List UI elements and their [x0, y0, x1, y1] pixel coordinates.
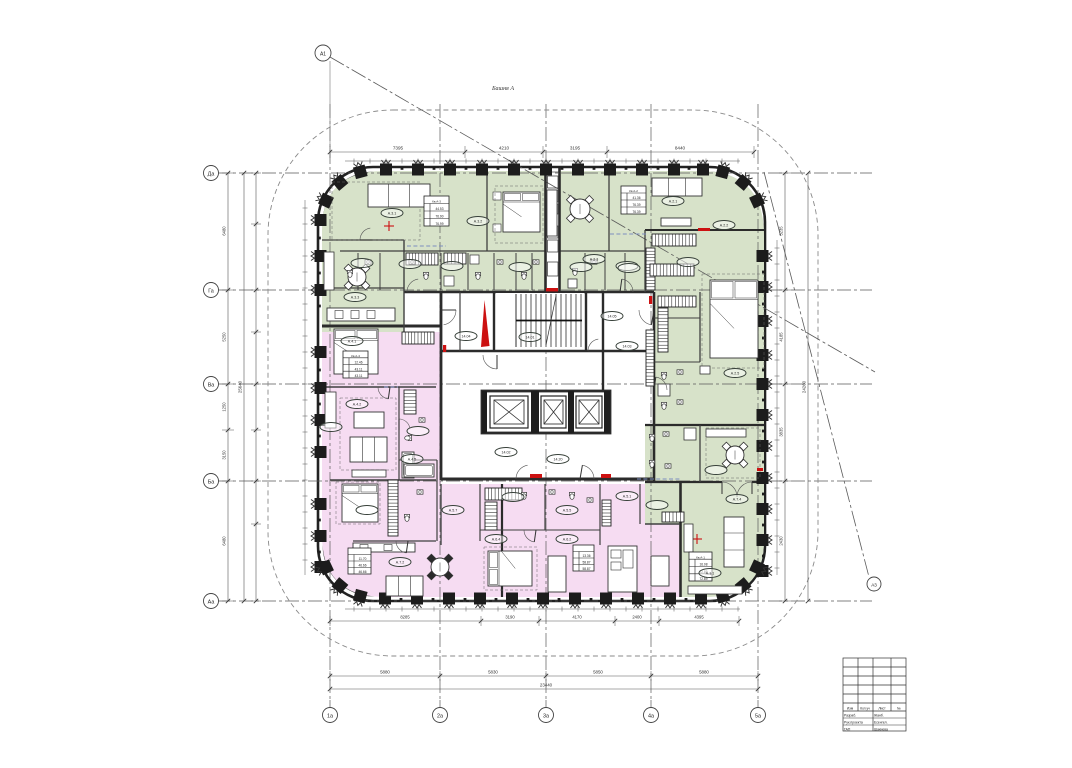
svg-text:3195: 3195 [570, 146, 581, 151]
svg-text:ГАП: ГАП [844, 728, 851, 732]
svg-text:1250: 1250 [222, 402, 227, 412]
svg-text:23440: 23440 [540, 683, 553, 688]
svg-text:Аа: Аа [208, 599, 215, 605]
svg-text:7395: 7395 [393, 146, 404, 151]
svg-text:А.3.3: А.3.3 [351, 295, 359, 299]
svg-text:13.36: 13.36 [583, 554, 591, 558]
svg-text:25640: 25640 [238, 380, 243, 393]
svg-text:14.20: 14.20 [554, 457, 563, 461]
svg-text:2400: 2400 [632, 615, 642, 620]
svg-text:44.53: 44.53 [436, 207, 444, 211]
svg-text:А.7.4: А.7.4 [733, 497, 741, 501]
svg-text:3235: 3235 [779, 226, 784, 236]
svg-text:Кв.А-3: Кв.А-3 [432, 200, 441, 204]
svg-text:5830: 5830 [488, 670, 498, 675]
svg-text:14.02: 14.02 [502, 450, 511, 454]
svg-text:46.66: 46.66 [359, 564, 367, 568]
svg-text:А.2.1: А.2.1 [669, 199, 677, 203]
svg-text:2430: 2430 [779, 536, 784, 546]
svg-text:А.2.3: А.2.3 [590, 257, 598, 261]
svg-text:Есенгел.: Есенгел. [874, 721, 888, 725]
svg-text:Кв.А-1: Кв.А-1 [696, 555, 705, 559]
svg-text:А.6.4: А.6.4 [492, 537, 500, 541]
svg-text:А.5.1: А.5.1 [623, 494, 631, 498]
svg-text:4185: 4185 [779, 332, 784, 342]
svg-text:43.11: 43.11 [355, 367, 363, 371]
svg-text:Кол.уч: Кол.уч [860, 707, 870, 711]
svg-text:41.36: 41.36 [633, 196, 641, 200]
svg-text:6480: 6480 [222, 226, 227, 236]
svg-text:43.11: 43.11 [355, 374, 363, 378]
svg-text:Лист: Лист [878, 707, 886, 711]
svg-text:4а: 4а [648, 713, 654, 719]
svg-text:8285: 8285 [400, 615, 410, 620]
svg-text:А.2.2: А.2.2 [720, 223, 728, 227]
svg-text:Кв.А-4: Кв.А-4 [351, 354, 360, 358]
svg-text:Жанб.: Жанб. [874, 714, 884, 718]
svg-text:А1: А1 [320, 51, 326, 57]
svg-text:3150: 3150 [222, 450, 227, 460]
svg-text:24260: 24260 [802, 380, 807, 393]
svg-text:4210: 4210 [499, 146, 510, 151]
svg-text:6480: 6480 [222, 536, 227, 546]
svg-text:Разраб.: Разраб. [844, 714, 856, 718]
svg-text:А.5.5: А.5.5 [563, 508, 571, 512]
svg-text:А.1.1: А.1.1 [706, 571, 714, 575]
svg-text:76.39: 76.39 [633, 210, 641, 214]
svg-text:А.5.7: А.5.7 [449, 508, 457, 512]
svg-text:Шакиева: Шакиева [874, 728, 888, 732]
svg-text:4170: 4170 [572, 615, 582, 620]
svg-text:58.87: 58.87 [583, 561, 591, 565]
svg-text:3835: 3835 [779, 427, 784, 437]
svg-text:А.7.2: А.7.2 [396, 560, 404, 564]
svg-text:Га: Га [208, 288, 214, 294]
svg-text:Изм: Изм [847, 707, 854, 711]
svg-text:А.4.2: А.4.2 [353, 402, 361, 406]
svg-text:А.2.5: А.2.5 [731, 371, 739, 375]
svg-text:14.04: 14.04 [462, 334, 471, 338]
svg-text:А3: А3 [871, 582, 877, 587]
svg-text:14.05: 14.05 [608, 314, 617, 318]
svg-text:№: № [897, 707, 901, 711]
svg-text:А.4.1: А.4.1 [348, 339, 356, 343]
svg-text:5850: 5850 [593, 670, 603, 675]
svg-text:14.01: 14.01 [526, 335, 535, 339]
svg-text:46.66: 46.66 [359, 570, 367, 574]
svg-text:Кв.А-2: Кв.А-2 [629, 189, 638, 193]
svg-text:Рук.проекта: Рук.проекта [844, 721, 863, 725]
svg-text:5880: 5880 [380, 670, 390, 675]
svg-text:1а: 1а [327, 713, 333, 719]
svg-text:А.6.2: А.6.2 [563, 537, 571, 541]
svg-text:3190: 3190 [505, 615, 515, 620]
svg-text:А.3.2: А.3.2 [474, 219, 482, 223]
svg-text:А.4.5: А.4.5 [408, 457, 416, 461]
svg-text:4395: 4395 [694, 615, 704, 620]
svg-text:5а: 5а [755, 713, 761, 719]
svg-text:58.87: 58.87 [583, 567, 591, 571]
svg-text:12.46: 12.46 [355, 361, 363, 365]
svg-text:3а: 3а [543, 713, 549, 719]
svg-text:76.99: 76.99 [436, 222, 444, 226]
svg-text:Ба: Ба [208, 479, 215, 485]
svg-text:Ва: Ва [208, 382, 215, 388]
svg-text:5250: 5250 [222, 332, 227, 342]
svg-text:А.3.1: А.3.1 [388, 211, 396, 215]
svg-text:Да: Да [208, 171, 215, 177]
svg-text:8440: 8440 [675, 146, 686, 151]
svg-text:11.70: 11.70 [359, 557, 367, 561]
svg-text:76.39: 76.39 [633, 203, 641, 207]
svg-text:76.90: 76.90 [436, 215, 444, 219]
svg-text:16.08: 16.08 [700, 563, 708, 567]
svg-text:Башня А: Башня А [491, 86, 514, 92]
svg-text:14.03: 14.03 [623, 344, 632, 348]
svg-text:2а: 2а [437, 713, 443, 719]
svg-text:5880: 5880 [699, 670, 709, 675]
